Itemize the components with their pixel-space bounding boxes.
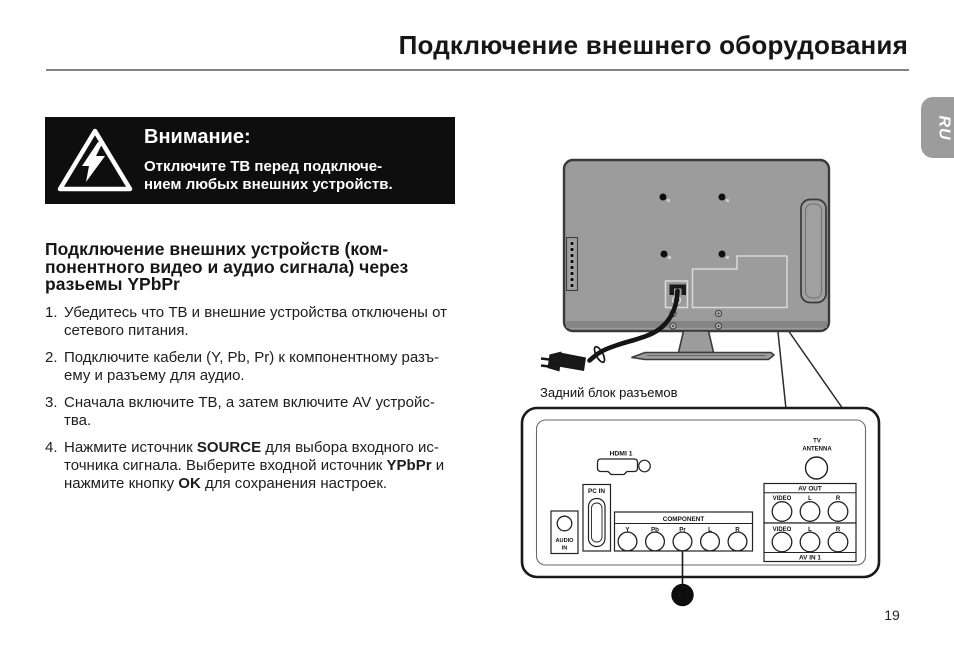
audio-in-label: AUDIO: [555, 538, 574, 544]
page-title: Подключение внешнего оборудования: [46, 30, 908, 61]
step-text-segment: SOURCE: [197, 439, 261, 456]
antenna-label: ANTENNA: [802, 447, 832, 453]
step-item: 3.Сначала включите ТВ, а затем включите …: [45, 394, 469, 430]
step-text-segment: Убедитесь что ТВ и внешние устройства от…: [64, 304, 447, 321]
av-in-title: AV IN 1: [799, 555, 821, 562]
step-text-segment: для сохранения настроек.: [201, 475, 387, 492]
warning-box: Внимание: Отключите ТВ перед подключе- н…: [45, 117, 455, 204]
tv-rear-diagram: Задний блок разъемов HDMI 1 PC IN AUDIO …: [520, 140, 900, 615]
step-text: Подключите кабели (Y, Pb, Pr) к компонен…: [64, 349, 469, 385]
pc-in-label: PC IN: [588, 488, 605, 495]
title-divider: [46, 69, 909, 71]
step-text: Нажмите источник SOURCE для выбора входн…: [64, 439, 469, 493]
rear-panel-diagram: HDMI 1 PC IN AUDIO IN COMPONENT Y Pb Pr …: [522, 408, 879, 606]
step-text: Убедитесь что ТВ и внешние устройства от…: [64, 304, 469, 340]
pc-in-port: PC IN: [583, 485, 611, 552]
warning-heading: Внимание:: [144, 126, 444, 149]
step-text-segment: ему и разъему для аудио.: [64, 367, 245, 384]
step-number: 1.: [45, 304, 64, 340]
warning-text-line: Отключите ТВ перед подключе-: [144, 158, 444, 176]
hdmi-label: HDMI 1: [609, 451, 632, 458]
step-text-segment: YPbPr: [387, 457, 432, 474]
high-voltage-warning-icon: [55, 127, 135, 200]
small-jack: [639, 460, 651, 472]
step-line: Убедитесь что ТВ и внешние устройства от…: [64, 304, 469, 322]
step-line: нажмите кнопку OK для сохранения настрое…: [64, 475, 469, 493]
diagram-caption: Задний блок разъемов: [540, 385, 678, 400]
step-text-segment: для выбора входного ис-: [261, 439, 439, 456]
tv-rear-view-illustration: [541, 160, 829, 372]
audio-in-port: AUDIO IN: [551, 511, 578, 554]
badge-number: 14: [675, 588, 691, 603]
step-text-segment: Нажмите источник: [64, 439, 197, 456]
instructions-section: Подключение внешних устройств (ком- поне…: [45, 241, 469, 502]
component-title: COMPONENT: [663, 516, 705, 523]
step-line: сетевого питания.: [64, 322, 469, 340]
warning-text-line: нием любых внешних устройств.: [144, 176, 444, 194]
step-text-segment: нажмите кнопку: [64, 475, 178, 492]
step-text-segment: Сначала включите ТВ, а затем включите AV…: [64, 394, 435, 411]
step-line: точника сигнала. Выберите входной источн…: [64, 457, 469, 475]
av-out-ports: AV OUT VIDEO L R: [764, 484, 856, 524]
av-out-title: AV OUT: [798, 486, 822, 493]
step-text-segment: OK: [178, 475, 201, 492]
step-text-segment: тва.: [64, 412, 91, 429]
language-tab: RU: [921, 97, 954, 158]
step-text-segment: Подключите кабели (Y, Pb, Pr) к компонен…: [64, 349, 439, 366]
steps-list: 1.Убедитесь что ТВ и внешние устройства …: [45, 304, 469, 493]
step-item: 1.Убедитесь что ТВ и внешние устройства …: [45, 304, 469, 340]
step-line: тва.: [64, 412, 469, 430]
rear-side-slot: [801, 200, 826, 303]
language-tab-label: RU: [934, 115, 952, 140]
tv-bottom-bezel: [566, 321, 827, 328]
av-in-ports: VIDEO L R AV IN 1: [764, 523, 856, 562]
section-heading: разьемы YPbPr: [45, 276, 469, 294]
step-text-segment: и: [432, 457, 445, 474]
page-number: 19: [867, 607, 917, 623]
power-plug: [541, 352, 586, 372]
step-line: Подключите кабели (Y, Pb, Pr) к компонен…: [64, 349, 469, 367]
step-line: Нажмите источник SOURCE для выбора входн…: [64, 439, 469, 457]
step-number: 4.: [45, 439, 64, 493]
step-text-segment: точника сигнала. Выберите входной источн…: [64, 457, 387, 474]
audio-in-label: IN: [562, 546, 568, 552]
step-item: 2.Подключите кабели (Y, Pb, Pr) к компон…: [45, 349, 469, 385]
component-ports: COMPONENT Y Pb Pr L R: [615, 512, 753, 551]
step-number: 3.: [45, 394, 64, 430]
step-item: 4.Нажмите источник SOURCE для выбора вхо…: [45, 439, 469, 493]
step-number: 2.: [45, 349, 64, 385]
step-text-segment: сетевого питания.: [64, 322, 189, 339]
callout-badge-14: 14: [671, 584, 693, 606]
step-line: Сначала включите ТВ, а затем включите AV…: [64, 394, 469, 412]
step-line: ему и разъему для аудио.: [64, 367, 469, 385]
step-text: Сначала включите ТВ, а затем включите AV…: [64, 394, 469, 430]
side-connector-strip: [567, 238, 578, 291]
antenna-label: TV: [813, 439, 821, 445]
